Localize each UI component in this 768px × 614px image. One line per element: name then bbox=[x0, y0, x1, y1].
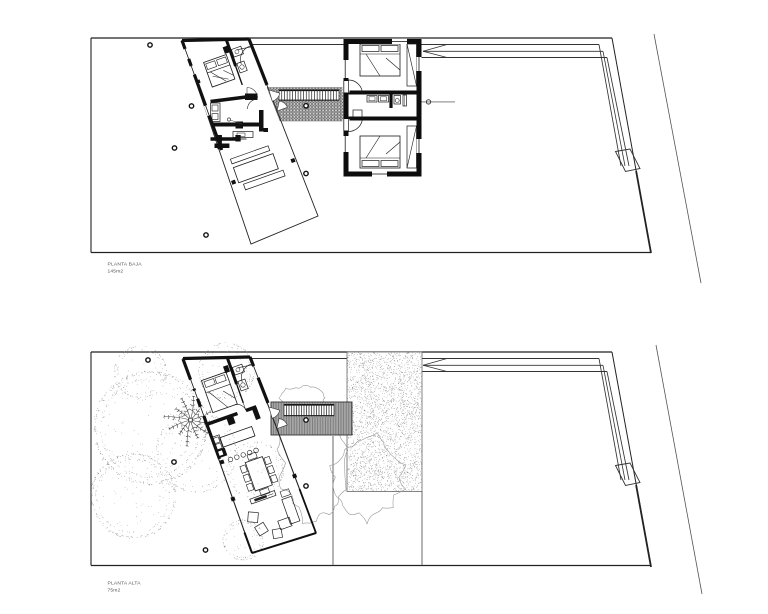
svg-text:145m2: 145m2 bbox=[108, 269, 124, 275]
svg-text:PLANTA ALTA: PLANTA ALTA bbox=[108, 581, 142, 587]
svg-text:75m2: 75m2 bbox=[108, 588, 121, 594]
svg-text:PLANTA BAJA: PLANTA BAJA bbox=[108, 262, 143, 268]
